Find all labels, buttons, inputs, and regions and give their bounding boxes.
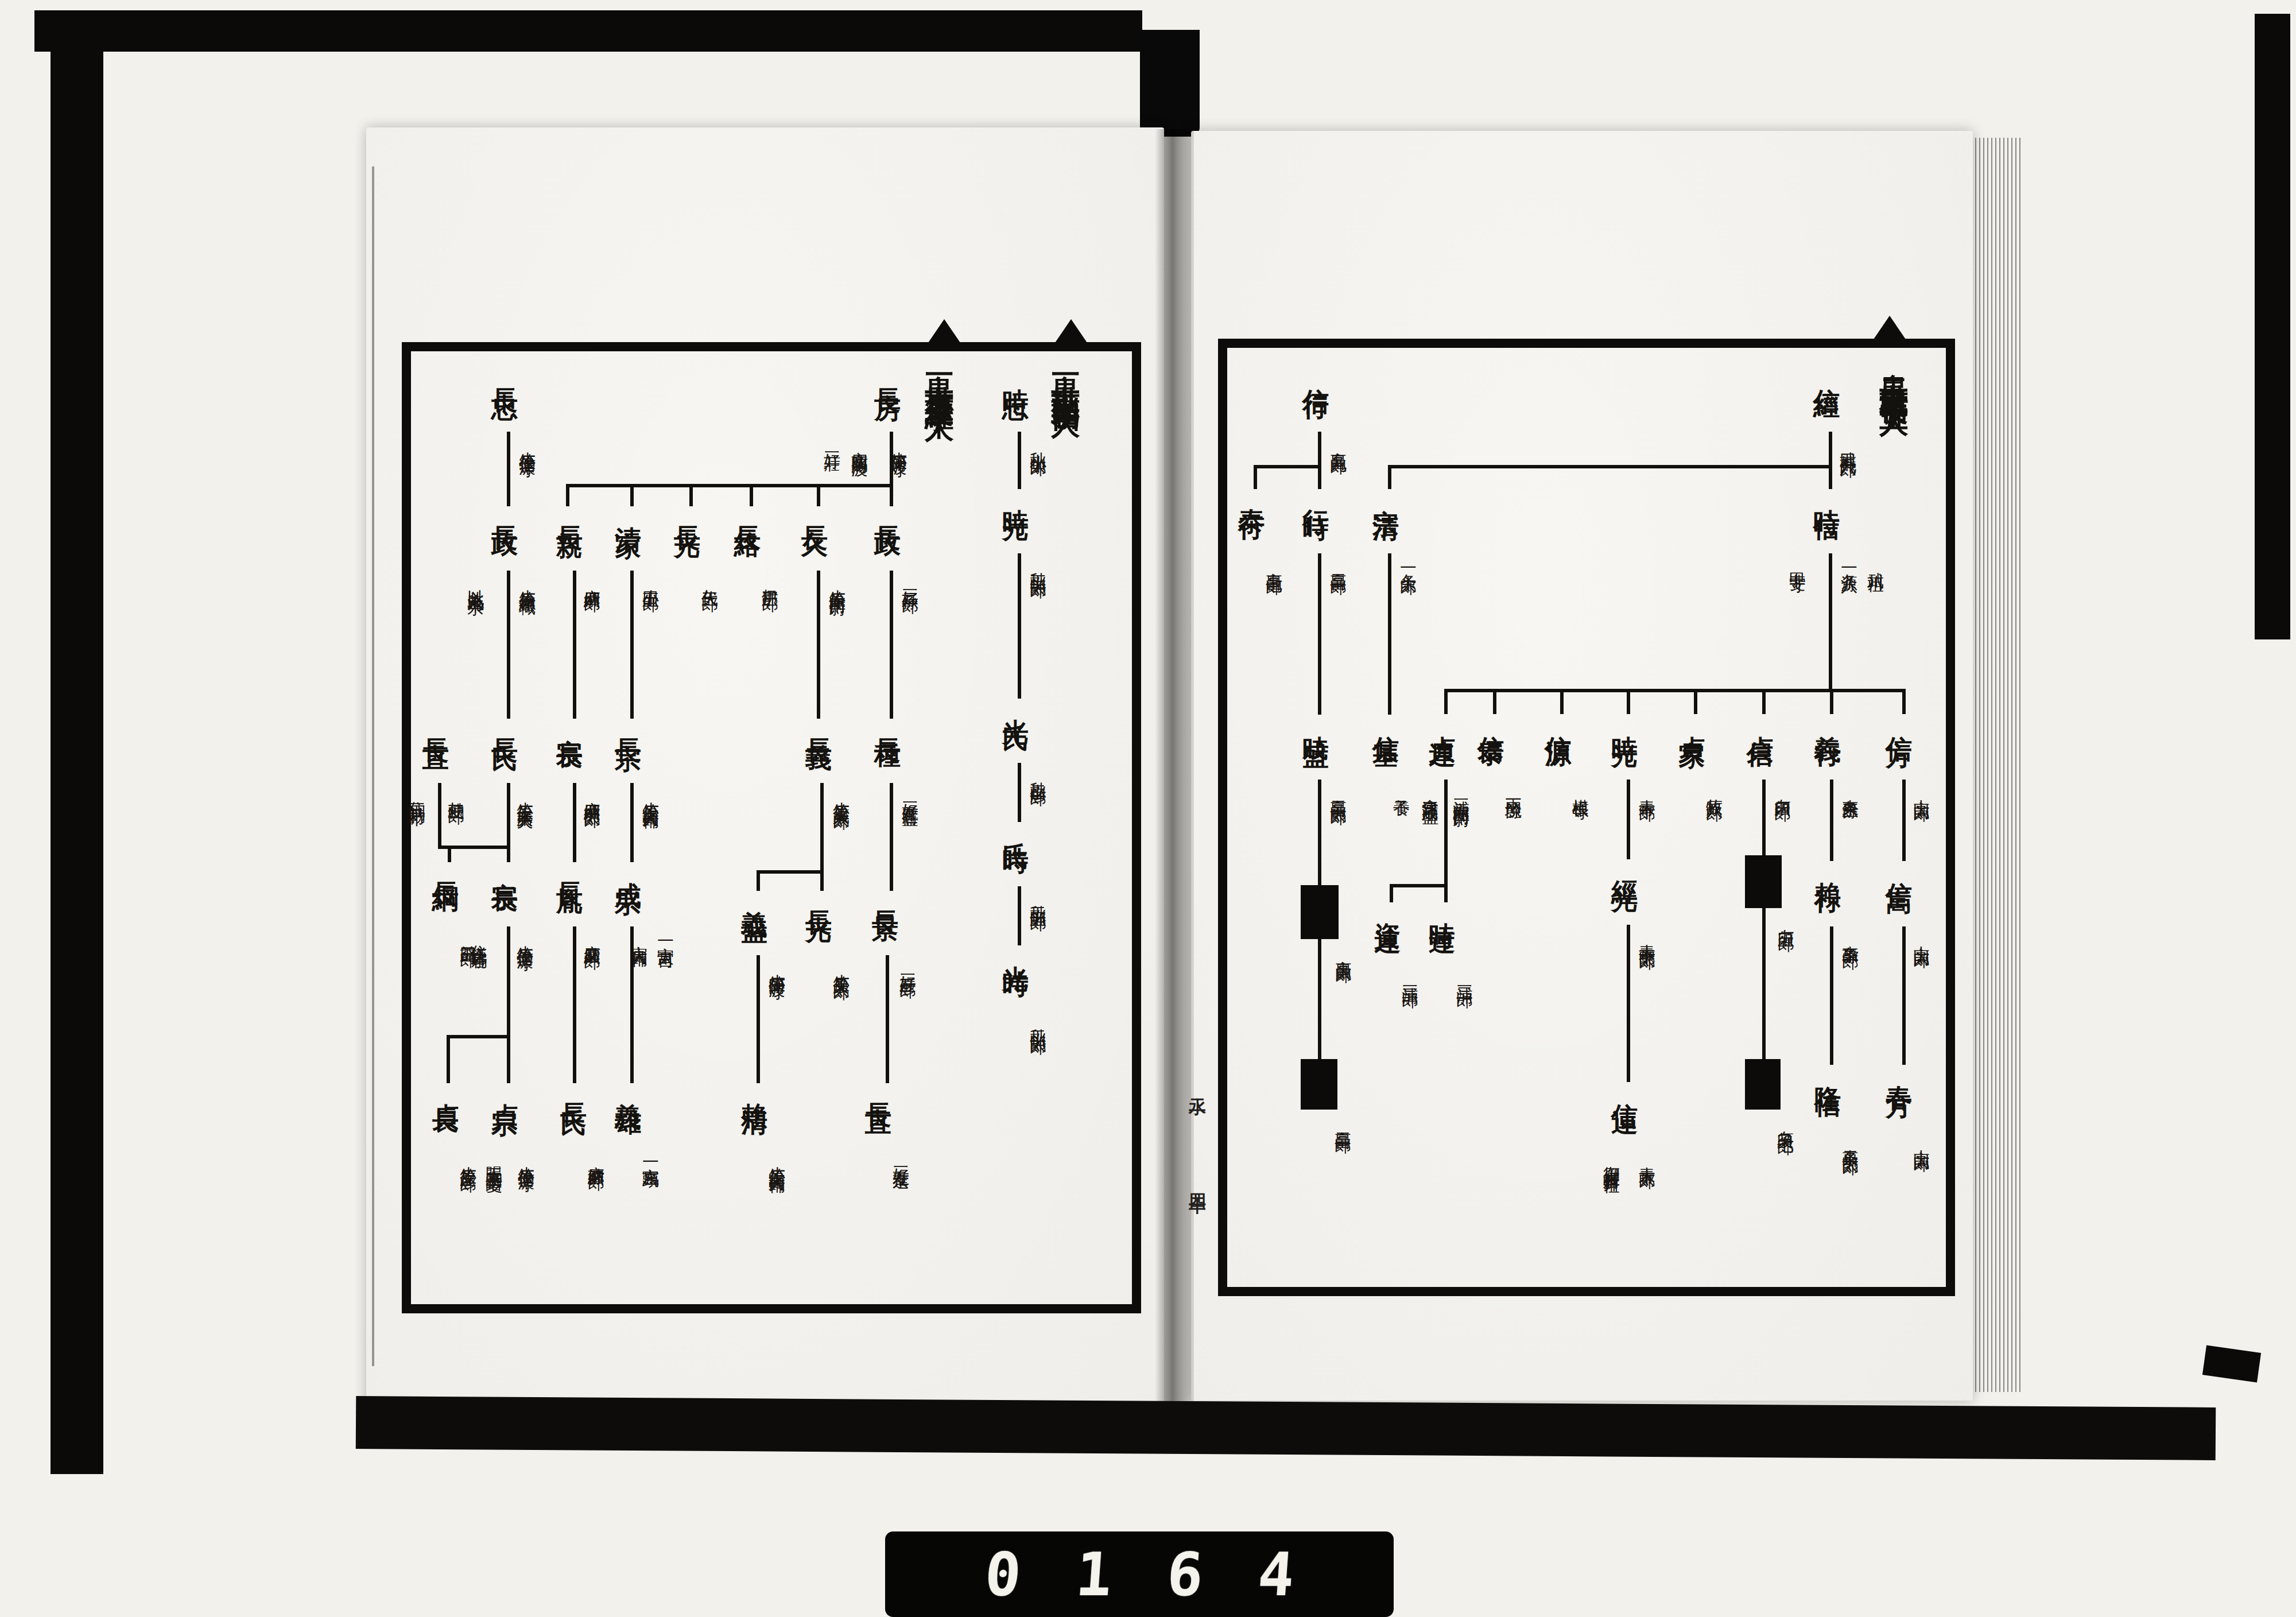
- descent-line-horizontal: [566, 484, 892, 487]
- person-node: 長久: [802, 505, 828, 515]
- person-node: 信方: [1886, 715, 1913, 725]
- person-node: 信基: [1373, 715, 1399, 725]
- descent-line-horizontal: [757, 870, 824, 874]
- generation-header-text: 皇十一世小笠原長經子十人: [925, 353, 954, 394]
- person-node: 光時: [1003, 944, 1029, 955]
- person-note: 會津三浦政盛: [1422, 786, 1438, 796]
- person-node: 長景: [872, 890, 899, 900]
- person-note: 小笠原信濃守: [518, 1153, 534, 1164]
- person-node: 長綱: [433, 861, 459, 871]
- descent-line-horizontal: [447, 1035, 510, 1038]
- person-node: 長義: [806, 718, 832, 728]
- person-name: 長直: [423, 718, 449, 728]
- descent-line-vertical: [689, 484, 693, 506]
- book-spine-clip: [1140, 30, 1200, 137]
- person-note: 小笠原藏人太郎: [833, 789, 850, 801]
- person-node: 長氏: [561, 1082, 587, 1092]
- descent-line-vertical: [438, 783, 441, 847]
- person-name: 宗清: [1373, 488, 1399, 498]
- person-name: 資連: [1375, 901, 1401, 912]
- person-note: 小笠原總領職: [519, 576, 536, 587]
- person-node: 長直: [423, 718, 449, 728]
- person-name: 時盛: [1303, 715, 1329, 725]
- generation-header: 皇十一世小笠原長經子十人: [925, 353, 954, 394]
- descent-line-vertical: [447, 1035, 450, 1083]
- person-name: 信源: [1545, 715, 1572, 725]
- descent-line-vertical: [757, 955, 760, 1083]
- person-name: 時光: [1612, 715, 1638, 725]
- descent-line-vertical: [1390, 884, 1393, 902]
- person-note: 三浦六郎左衛門尉: [1453, 786, 1469, 800]
- person-name: 貞家: [1679, 715, 1705, 725]
- person-name: 清家: [615, 505, 642, 515]
- person-note: 白須五郎: [1778, 916, 1794, 923]
- descent-line-vertical: [1830, 689, 1833, 714]
- person-note: 麻績四郎: [584, 576, 600, 583]
- person-note: 伊那三郎: [762, 576, 778, 583]
- descent-line-vertical: [1830, 926, 1833, 1065]
- descent-line-vertical: [573, 926, 576, 1083]
- generation-header-text: 皇十一世秋山光朝子四人: [1052, 353, 1080, 391]
- person-name: 長光: [806, 890, 832, 900]
- person-note: 賜王字為三階菱: [486, 1153, 502, 1165]
- person-note: 高畠二郎: [1330, 559, 1347, 566]
- person-note: 青木十郎太郎: [1639, 930, 1655, 941]
- person-node: 貞長: [433, 1082, 459, 1092]
- person-name: 長政: [492, 505, 518, 515]
- descent-line-vertical: [1254, 465, 1257, 489]
- person-name: 長宗: [615, 718, 642, 728]
- descent-line-vertical: [1493, 689, 1496, 714]
- descent-line-vertical: [573, 783, 576, 862]
- scan-border-left: [51, 10, 103, 1474]
- person-name: 長綱: [433, 861, 459, 871]
- generation-header: 皇十二世武田信長子五人: [1880, 351, 1909, 389]
- person-note: 御厨大幡折井祖: [1603, 1153, 1620, 1165]
- left-page-edge-line: [372, 166, 374, 1366]
- descent-line-vertical: [1627, 780, 1630, 859]
- person-note: 勅使三郎: [448, 789, 464, 796]
- person-node: 長親: [557, 505, 583, 515]
- person-name: 長親: [557, 505, 583, 515]
- person-note: 甲斐守: [1789, 559, 1806, 564]
- person-note: 三好左近將監: [902, 789, 918, 799]
- person-name: 時忠: [1003, 367, 1029, 378]
- descent-line-vertical: [448, 846, 451, 862]
- person-node: 貞宗: [492, 1082, 518, 1092]
- person-name: 信連: [1612, 1082, 1638, 1092]
- person-name: 長政: [875, 505, 901, 515]
- person-node: 信嵩: [1886, 861, 1913, 871]
- person-name: 信基: [1373, 715, 1399, 725]
- descent-line-vertical: [757, 870, 760, 891]
- scan-border-top: [34, 10, 1142, 52]
- descent-line-vertical: [507, 1035, 510, 1083]
- person-note: 益田三郎: [460, 932, 476, 939]
- descent-line-vertical: [1318, 553, 1321, 715]
- redacted-name-box: [1745, 1059, 1781, 1110]
- person-node: 時光: [1612, 715, 1638, 725]
- person-name: 賴清: [742, 1082, 768, 1092]
- descent-line-vertical: [630, 571, 634, 719]
- person-node: 長絡: [735, 505, 761, 515]
- person-name: 賴行: [1815, 861, 1841, 871]
- person-name: 長景: [872, 890, 899, 900]
- person-name: 成宗: [615, 861, 642, 871]
- person-note: 白須四郎: [1774, 786, 1791, 793]
- person-node: 義雄: [615, 1082, 642, 1092]
- frame-marker-triangle: [1872, 316, 1907, 341]
- person-node: 宗清: [1373, 488, 1399, 498]
- person-name: 時信: [1814, 488, 1840, 498]
- descent-line-vertical: [1762, 780, 1766, 855]
- generation-header: 皇十一世秋山光朝子四人: [1052, 353, 1080, 391]
- person-node: 長政: [492, 505, 518, 515]
- person-note: 東条餘三: [1842, 786, 1859, 793]
- descent-line-vertical: [1829, 553, 1832, 691]
- redacted-name-box: [1301, 1059, 1337, 1110]
- person-name: 信經: [1814, 367, 1840, 378]
- person-note: 山高太郎: [1913, 932, 1930, 939]
- descent-line-vertical: [1694, 689, 1697, 714]
- descent-line-vertical: [630, 926, 634, 1083]
- person-node: 信連: [1612, 1082, 1638, 1092]
- person-note: 牧原八郎: [1706, 786, 1723, 793]
- person-node: 光氏: [1003, 697, 1029, 708]
- descent-line-vertical: [1444, 689, 1448, 714]
- descent-line-vertical: [1902, 926, 1906, 1065]
- person-node: 貞家: [1679, 715, 1705, 725]
- descent-line-vertical: [890, 432, 893, 506]
- redacted-name-box: [1745, 855, 1782, 908]
- descent-line-vertical: [890, 783, 893, 891]
- generation-header-text: 皇十二世武田信長子五人: [1880, 351, 1909, 389]
- person-note: 麻績弥四郎: [588, 1153, 604, 1162]
- person-note: 青木十郎: [1639, 786, 1655, 793]
- person-node: 信經: [1814, 367, 1840, 378]
- person-note: 高畠二郎太郎: [1330, 786, 1347, 796]
- person-name: 隆信: [1815, 1065, 1841, 1075]
- person-note: 一宮大宮司: [657, 932, 674, 941]
- descent-line-vertical: [1388, 553, 1391, 715]
- person-note: 秋山彦二郎: [1030, 769, 1046, 777]
- person-name: 時連: [1429, 901, 1456, 912]
- descent-line-vertical: [1444, 780, 1448, 885]
- descent-line-horizontal: [1390, 884, 1448, 887]
- person-node: 宗長: [492, 861, 518, 871]
- person-node: 時忠: [1003, 367, 1029, 378]
- person-note: 小笠原大膳大夫: [517, 789, 533, 801]
- descent-line-vertical: [1018, 432, 1021, 489]
- person-name: 光時: [1003, 944, 1029, 955]
- person-name: 義雄: [615, 1082, 642, 1092]
- descent-line-vertical: [820, 870, 824, 891]
- descent-line-vertical: [1388, 465, 1391, 489]
- person-note: 養子: [1393, 786, 1410, 789]
- person-note: 小笠原左衛門尉: [829, 576, 846, 588]
- person-name: 長種: [875, 718, 901, 728]
- person-name: 貞長: [433, 1082, 459, 1092]
- person-node: 長氏: [492, 718, 518, 728]
- person-name: 長氏: [561, 1082, 587, 1092]
- person-name: 長光: [674, 505, 701, 515]
- right-page-stacked-edges: [1972, 138, 2022, 1392]
- descent-line-horizontal: [1444, 689, 1905, 692]
- scan-mark-bottom-right: [2202, 1345, 2261, 1383]
- person-node: 隆信: [1815, 1065, 1841, 1075]
- person-note: 高畠七郎: [1266, 559, 1282, 566]
- person-node: 貞連: [1429, 715, 1456, 725]
- book-bottom-shadow: [356, 1396, 2216, 1460]
- person-note: 高畠九郎: [1330, 439, 1347, 445]
- descent-line-vertical: [1902, 689, 1906, 714]
- person-name: 長胤: [557, 861, 583, 871]
- descent-line-vertical: [1829, 432, 1832, 489]
- person-name: 經光: [1612, 859, 1638, 870]
- person-note: 山高太郎: [1913, 786, 1930, 793]
- person-node: 泰行: [1239, 488, 1265, 498]
- person-note: 三好莊: [824, 439, 840, 444]
- descent-line-vertical: [1318, 780, 1321, 885]
- person-note: 小笠原信濃守: [519, 439, 536, 449]
- person-node: 長忠: [492, 367, 518, 378]
- descent-line-horizontal: [1254, 465, 1321, 468]
- person-note: 小笠原宮內大輔: [642, 789, 659, 801]
- person-note: 以此流為本宗: [467, 576, 484, 587]
- descent-line-vertical: [1318, 939, 1321, 1059]
- person-name: 長忠: [492, 367, 518, 378]
- descent-line-vertical: [890, 571, 893, 719]
- person-node: 清家: [615, 505, 642, 515]
- descent-line-vertical: [1627, 689, 1630, 714]
- descent-line-vertical: [1444, 884, 1448, 902]
- person-node: 長政: [875, 505, 901, 515]
- person-note: 東条二郎太郎: [1842, 1136, 1859, 1146]
- person-node: 時連: [1429, 901, 1456, 912]
- person-node: 氏時: [1003, 821, 1029, 831]
- person-node: 時信: [1814, 488, 1840, 498]
- person-name: 光氏: [1003, 697, 1029, 708]
- person-name: 長絡: [735, 505, 761, 515]
- descent-line-vertical: [817, 484, 820, 506]
- descent-line-vertical: [1762, 908, 1766, 1059]
- person-note: 一宮左馬頭: [642, 1153, 659, 1162]
- redacted-name-box: [1301, 885, 1339, 939]
- person-node: 貞信: [1747, 715, 1774, 725]
- person-node: 長光: [806, 890, 832, 900]
- person-name: 時光: [1003, 488, 1029, 498]
- person-note: 三好左京進: [893, 1153, 909, 1162]
- descent-line-vertical: [573, 571, 576, 719]
- person-note: 横根寺: [1572, 786, 1589, 791]
- scanned-genealogy-spread: { "document_type": "Scanned two-page spr…: [0, 0, 2296, 1617]
- person-note: 矢代三郎: [701, 576, 718, 583]
- person-node: 經光: [1612, 859, 1638, 870]
- person-name: 貞連: [1429, 715, 1456, 725]
- descent-line-vertical: [1902, 780, 1906, 861]
- person-note: 秋山二郎太郎: [1030, 1015, 1046, 1026]
- scan-border-right: [2255, 14, 2290, 639]
- person-name: 貞宗: [492, 1082, 518, 1092]
- person-name: 長房: [875, 367, 901, 378]
- person-node: 長胤: [557, 861, 583, 871]
- person-note: 白須又七郎: [1777, 1118, 1794, 1126]
- person-note: 文永四賜阿波: [851, 439, 868, 449]
- person-note: 麻績四郎太郎: [584, 789, 600, 799]
- person-name: 長義: [806, 718, 832, 728]
- person-node: 時光: [1003, 488, 1029, 498]
- descent-line-vertical: [566, 484, 569, 506]
- person-note: 東条弥二郎: [1842, 932, 1859, 941]
- person-note: 小笠原宮內大輔: [769, 1153, 785, 1165]
- person-node: 長直: [866, 1082, 892, 1092]
- person-note: 三好彦三郎: [899, 961, 916, 970]
- person-name: 氏時: [1003, 821, 1029, 831]
- person-node: 資連: [1375, 901, 1401, 912]
- descent-line-vertical: [1762, 689, 1766, 714]
- person-name: 信方: [1886, 715, 1913, 725]
- person-note: 秋山小太郎: [1030, 439, 1046, 447]
- person-name: 貞信: [1747, 715, 1774, 725]
- descent-line-vertical: [1018, 763, 1021, 822]
- descent-line-vertical: [750, 484, 753, 506]
- descent-line-horizontal: [1388, 465, 1832, 468]
- person-name: 信泰: [1478, 715, 1504, 725]
- book-gutter-shadow: [1155, 129, 1194, 1412]
- margin-folio-mark: 水二: [1185, 1084, 1209, 1088]
- person-name: 行時: [1303, 488, 1329, 498]
- descent-line-vertical: [1560, 689, 1564, 714]
- person-node: 義行: [1815, 715, 1841, 725]
- person-note: 兩境餘一: [1505, 786, 1522, 793]
- person-node: 成宗: [615, 861, 642, 871]
- person-node: 長宗: [615, 718, 642, 728]
- person-node: 賴行: [1815, 861, 1841, 871]
- person-name: 宗長: [492, 861, 518, 871]
- person-node: 時盛: [1303, 715, 1329, 725]
- descent-line-vertical: [630, 484, 634, 506]
- person-note: 三浦三郎: [1402, 972, 1418, 979]
- person-name: 泰行: [1239, 488, 1265, 498]
- descent-line-vertical: [820, 783, 824, 873]
- descent-line-vertical: [1830, 780, 1833, 861]
- person-name: 信嵩: [1886, 861, 1913, 871]
- person-name: 義盛: [742, 890, 768, 900]
- descent-line-vertical: [1318, 432, 1321, 489]
- descent-line-vertical: [817, 571, 820, 719]
- descent-line-vertical: [630, 783, 634, 862]
- person-node: 信源: [1545, 715, 1572, 725]
- descent-line-vertical: [507, 571, 510, 719]
- person-name: 宗長: [557, 718, 583, 728]
- person-node: 宗長: [557, 718, 583, 728]
- person-note: 小笠原彦三郎: [460, 1153, 476, 1164]
- descent-line-vertical: [886, 955, 889, 1083]
- person-node: 長房: [875, 367, 901, 378]
- person-node: 義盛: [742, 890, 768, 900]
- person-name: 信行: [1303, 367, 1329, 378]
- person-note: 小笠原阿波守: [769, 961, 785, 971]
- person-note: 小笠原信濃守: [517, 932, 533, 943]
- person-note: 武田持九六郎: [1840, 439, 1856, 449]
- descent-line-vertical: [507, 783, 510, 862]
- person-name: 長久: [802, 505, 828, 515]
- person-note: 一条太郎: [1400, 559, 1417, 566]
- person-node: 長種: [875, 718, 901, 728]
- frame-marker-triangle: [927, 319, 961, 344]
- person-node: 春方: [1886, 1065, 1913, 1075]
- person-note: 秋山二郎五郎: [1030, 892, 1046, 902]
- frame-counter-digits: 0164: [928, 1540, 1352, 1610]
- person-note: 青木太郎: [1639, 1153, 1655, 1160]
- person-node: 行時: [1303, 488, 1329, 498]
- person-note: 三浦二郎: [1456, 972, 1473, 979]
- descent-line-vertical: [1018, 553, 1021, 699]
- descent-line-vertical: [507, 926, 510, 1036]
- descent-line-vertical: [507, 432, 510, 506]
- right-chart-frame: [1218, 339, 1955, 1296]
- person-name: 義行: [1815, 715, 1841, 725]
- person-name: 長直: [866, 1082, 892, 1092]
- person-node: 賴清: [742, 1082, 768, 1092]
- person-note: 小田五郎: [642, 576, 659, 583]
- person-note: 山高太郎: [1913, 1136, 1930, 1143]
- person-note: 一条源八: [1841, 559, 1857, 566]
- person-note: 麻續又四郎: [584, 932, 600, 941]
- person-note: 秋山三郎太郎: [1030, 559, 1046, 569]
- person-name: 長氏: [492, 718, 518, 728]
- person-node: 信行: [1303, 367, 1329, 378]
- frame-marker-triangle: [1054, 319, 1088, 344]
- person-name: 春方: [1886, 1065, 1913, 1075]
- margin-folio-mark: 四十二: [1185, 1180, 1209, 1187]
- person-note: 高畠太郎: [1335, 947, 1352, 954]
- person-note: 武川祖: [1867, 559, 1884, 564]
- person-note: 住三別勅市: [409, 789, 425, 797]
- descent-line-vertical: [1018, 886, 1021, 945]
- person-note: 小笠原又太郎: [833, 961, 850, 971]
- person-note: 高畠二郎: [1335, 1118, 1351, 1124]
- descent-line-vertical: [1627, 925, 1630, 1082]
- frame-counter: 0164: [885, 1531, 1394, 1617]
- person-note: 三好孫二郎: [902, 576, 918, 585]
- person-node: 長光: [674, 505, 701, 515]
- person-node: 信泰: [1478, 715, 1504, 725]
